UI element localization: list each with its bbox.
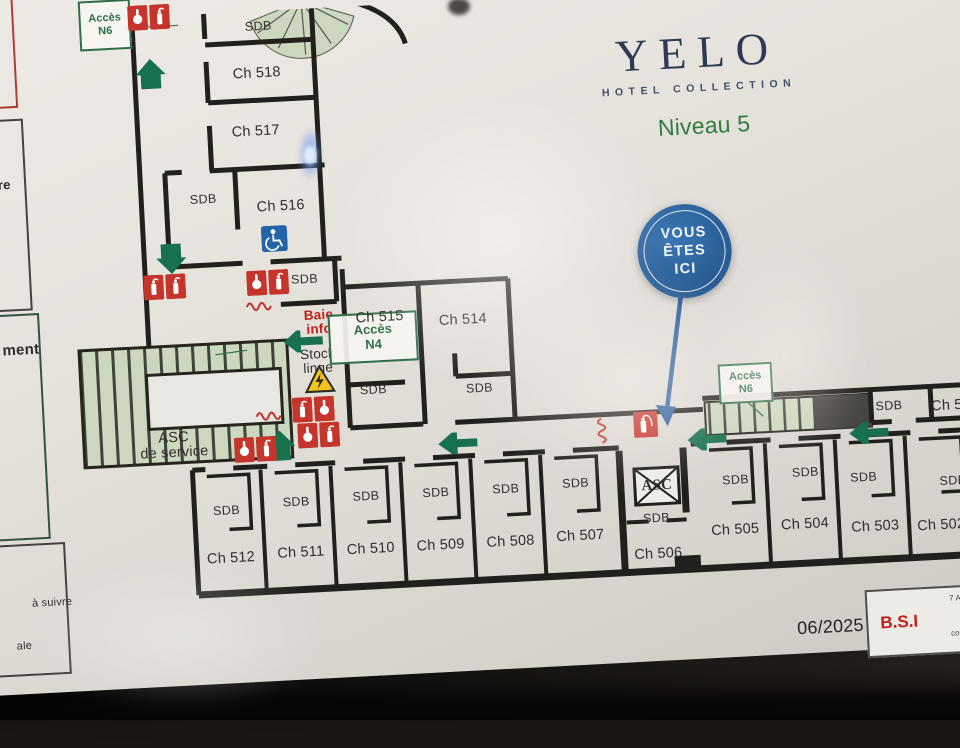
bsi-contact-l1: 7 Av. M — [949, 591, 960, 604]
room-label-sdb: SDB — [282, 494, 310, 509]
bsi-contact-block: 7 Av. M 06 06.S contact — [949, 591, 960, 639]
acces-n6-top-l2: N6 — [81, 24, 130, 39]
room-label-ch505: Ch 505 — [711, 521, 760, 539]
service-elevator-label: ASC de service — [139, 429, 209, 463]
fire-extinguisher-icon — [143, 274, 164, 300]
fire-alarm-icon — [297, 423, 318, 449]
yah-line3: ICI — [662, 259, 709, 280]
bsi-company-box: B.S.I 7 Av. M 06 06.S contact — [865, 584, 960, 658]
legend-partial-1: re — [0, 177, 11, 193]
legend-box-3 — [0, 542, 72, 680]
fire-alarm-icon — [314, 396, 335, 422]
wheelchair-icon — [261, 225, 289, 257]
room-label-sdb: SDB — [291, 271, 319, 286]
room-label-sdb: SDB — [213, 503, 241, 518]
room-label-sdb: SDB — [722, 472, 750, 487]
room-label-sdb: SDB — [360, 382, 388, 397]
bsi-contact-l2: 06 — [949, 603, 960, 616]
fire-alarm-icon — [234, 437, 255, 463]
fire-extinguisher-icon — [633, 411, 658, 437]
bsi-contact-l3: 06.S — [950, 615, 960, 628]
room-label-sdb: SDB — [244, 18, 272, 33]
room-label-ch512: Ch 512 — [207, 549, 256, 567]
bsi-contact-l4: contact — [951, 626, 960, 639]
legend-partial-3: à suivre — [32, 596, 73, 610]
hotel-logo: YELO HOTEL COLLECTION — [599, 21, 797, 99]
you-are-here-arrow — [650, 295, 688, 426]
fire-alarm-icon — [127, 5, 148, 31]
brand-name: YELO — [599, 21, 796, 83]
acces-n6-top-box: Accès N6 — [78, 0, 133, 51]
yah-line2: ÊTES — [661, 241, 708, 262]
fire-extinguisher-icon — [165, 273, 186, 299]
room-label-ch510: Ch 510 — [346, 540, 395, 558]
bsi-company-name: B.S.I — [880, 611, 919, 633]
exit-arrow-up-icon — [135, 58, 167, 90]
legend-partial-2: ment — [2, 341, 39, 360]
room-label-sdb: SDB — [643, 510, 671, 525]
fire-extinguisher-icon — [149, 4, 170, 30]
room-label-sdb: SDB — [939, 473, 960, 488]
room-label-ch517: Ch 517 — [231, 122, 280, 140]
room-label-sdb: SDB — [562, 475, 590, 490]
room-label-sdb: SDB — [352, 488, 380, 503]
room-label-sdb: SDB — [792, 464, 820, 479]
room-label-sdb: SDB — [422, 485, 450, 500]
room-label-ch518: Ch 518 — [232, 64, 281, 82]
room-label-ch502: Ch 502 — [917, 516, 960, 534]
room-label-sdb: SDB — [492, 481, 520, 496]
room-divider-walls — [260, 436, 911, 592]
exit-arrow-left-icon — [438, 431, 478, 455]
acces-n6-right-box: Accès N6 — [718, 362, 774, 405]
camera-flash-core — [304, 146, 316, 164]
fire-extinguisher-icon — [319, 421, 340, 447]
fire-extinguisher-icon — [256, 436, 277, 462]
wall-lines — [130, 0, 960, 597]
room-label-ch509: Ch 509 — [416, 536, 465, 554]
room-label-ch508: Ch 508 — [486, 532, 535, 550]
room-label-ch507: Ch 507 — [556, 527, 605, 545]
elevator-label: ASC — [641, 477, 672, 496]
legend-partial-4: ale — [16, 640, 32, 653]
electrical-hazard-icon — [303, 364, 337, 400]
exit-arrow-down-icon — [156, 243, 188, 275]
fire-extinguisher-icon — [292, 397, 313, 423]
room-label-ch514: Ch 514 — [439, 311, 488, 329]
fire-extinguisher-icon — [268, 269, 289, 295]
room-label-ch506: Ch 506 — [634, 545, 683, 563]
fire-alarm-icon — [246, 270, 267, 296]
room-label-sdb: SDB — [189, 192, 217, 207]
room-label-ch511: Ch 511 — [277, 543, 325, 561]
level-title: Niveau 5 — [657, 110, 751, 142]
room-label-ch516: Ch 516 — [256, 197, 305, 215]
outer-bottom-wall — [199, 555, 960, 595]
yah-line1: VOUS — [660, 223, 707, 244]
room-label-sdb: SDB — [850, 469, 878, 484]
room-label-ch503: Ch 503 — [851, 517, 900, 535]
room-label-ch50-partial: Ch 50 — [931, 396, 960, 414]
floor-plan: YELO HOTEL COLLECTION Niveau 5 VOUS ÊTES… — [0, 0, 960, 745]
acces-n4-l2: N4 — [331, 335, 417, 354]
plan-date: 06/2025 — [797, 615, 864, 639]
room-label-ch515: Ch 515 — [355, 308, 404, 326]
room-label-ch504: Ch 504 — [781, 515, 830, 533]
room-label-sdb: SDB — [466, 380, 494, 395]
room-label-sdb: SDB — [875, 398, 903, 413]
acces-n6-right-l2: N6 — [721, 382, 772, 397]
